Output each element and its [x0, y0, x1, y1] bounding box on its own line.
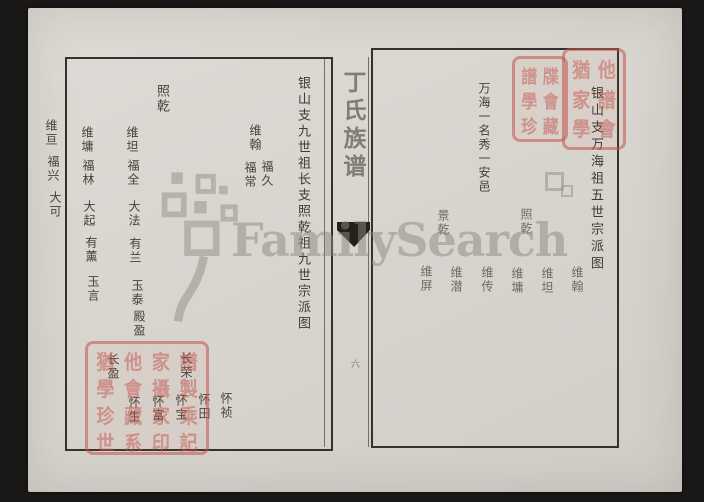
- left-page-title: 银山支九世祖长支照乾祖九世宗派图: [296, 76, 309, 332]
- red-seal-stamp-large: 猶他家譜學會: [562, 48, 626, 150]
- person-name: 福全: [127, 159, 139, 187]
- person-name: 福常: [244, 161, 256, 189]
- red-seal-stamp-small: 譜牒學會珍藏: [512, 56, 568, 142]
- person-name: 维坦: [126, 126, 138, 154]
- red-seal-stamp-bottom: 猶他家譜學會攝製珍藏家乘世系印記: [85, 341, 209, 455]
- page-number: 六: [349, 359, 358, 368]
- person-name: 维屏: [420, 265, 432, 293]
- watermark-tree-fragment: [561, 185, 573, 197]
- person-name-zhaoqian: 照乾: [155, 84, 168, 114]
- person-name: 福久: [261, 160, 273, 188]
- person-name: 福兴: [47, 155, 59, 183]
- person-name: 维坦: [541, 267, 553, 295]
- person-name: 大可: [49, 191, 61, 219]
- watermark-text: FamilySearch: [231, 213, 567, 267]
- book-spine-title: 丁氏族谱: [340, 70, 363, 182]
- person-name: 有兰: [129, 237, 141, 265]
- ancestor-line: 万海一名秀一安邑: [478, 82, 490, 194]
- person-name: 大起: [83, 200, 95, 228]
- person-name: 殿盈: [133, 310, 145, 338]
- person-name: 大法: [128, 200, 140, 228]
- person-name: 玉泰: [131, 279, 143, 307]
- person-name: 维潜: [450, 266, 462, 294]
- person-name: 维亘: [45, 119, 57, 147]
- person-name: 福林: [82, 159, 94, 187]
- person-name: 维墉: [511, 267, 523, 295]
- person-name: 怀祯: [220, 392, 232, 420]
- watermark-tree-icon: [156, 166, 242, 324]
- person-name: 维墉: [81, 126, 93, 154]
- person-name: 维翰: [571, 266, 583, 294]
- person-name: 维翰: [249, 124, 261, 152]
- person-name: 有薰: [85, 236, 97, 264]
- person-name: 玉言: [87, 275, 99, 303]
- person-name: 维传: [481, 266, 493, 294]
- scanned-genealogy-photo: 丁氏族谱 六 银山支九世祖长支照乾祖九世宗派图 照乾 维翰 福久 福常 维坦 福…: [0, 0, 704, 502]
